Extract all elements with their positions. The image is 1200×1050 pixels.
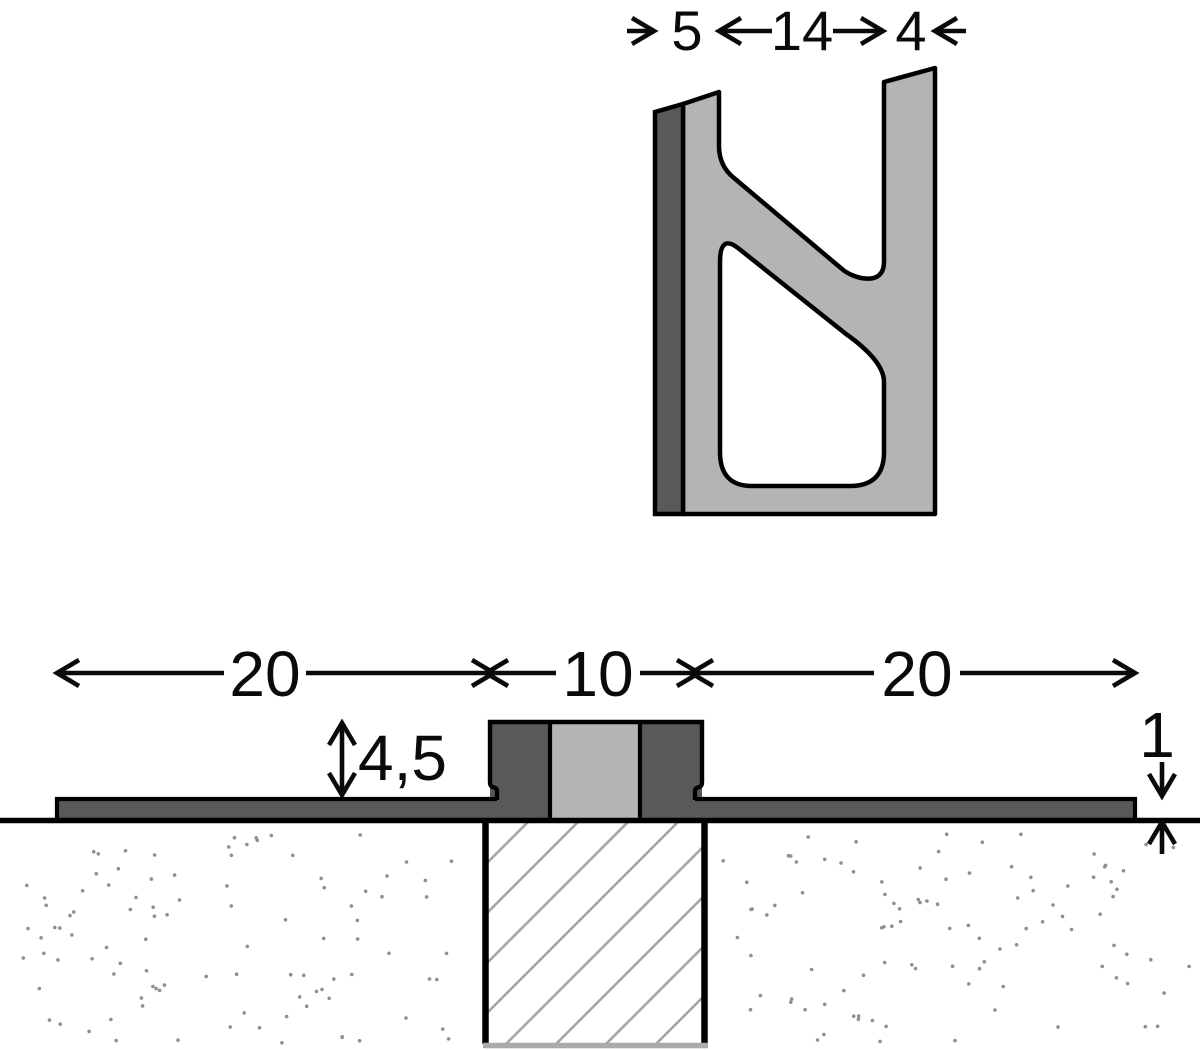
substrate-dot [176, 1038, 180, 1042]
substrate-dot [424, 879, 428, 883]
substrate-dot [1098, 912, 1102, 916]
substrate-dot [204, 975, 208, 979]
substrate-dot [109, 1018, 113, 1022]
substrate-dot [1126, 982, 1130, 986]
substrate-dot [916, 898, 920, 902]
dim-label-4-5: 4,5 [358, 722, 447, 794]
substrate-dot [298, 995, 302, 999]
dim-label-5: 5 [671, 0, 702, 62]
substrate-dot [154, 987, 158, 991]
substrate-dot [857, 1014, 861, 1018]
substrate-dot [945, 832, 949, 836]
substrate-dot [773, 904, 777, 908]
substrate-dot [230, 904, 234, 908]
substrate-dot [918, 866, 922, 870]
substrate-dot [968, 871, 972, 875]
substrate-dot [153, 914, 157, 918]
dim-label-20-right: 20 [881, 638, 952, 710]
substrate-dot [141, 1004, 145, 1008]
substrate-dot [163, 983, 167, 987]
substrate-dot [450, 859, 454, 863]
substrate-dot [150, 877, 154, 881]
substrate-dot [332, 977, 336, 981]
substrate-dot [749, 954, 753, 958]
substrate-dot [114, 1039, 118, 1043]
substrate-dot [1056, 1025, 1060, 1029]
thickness-dimension: 1 [1139, 699, 1175, 854]
substrate-dot [405, 860, 409, 864]
substrate-dot [233, 836, 237, 840]
substrate-dot [322, 937, 326, 941]
substrate-dot [910, 963, 914, 967]
substrate-dot [823, 858, 827, 862]
substrate-dot [319, 877, 323, 881]
substrate-dot [749, 908, 753, 912]
substrate-dot [291, 854, 295, 858]
substrate-dot [1016, 896, 1020, 900]
substrate-dot [302, 974, 306, 978]
substrate-dot [899, 920, 903, 924]
substrate-dot [39, 936, 43, 940]
substrate-dot [225, 884, 229, 888]
substrate-dot [1024, 927, 1028, 931]
substrate-dot [1144, 843, 1148, 847]
substrate-dot [140, 996, 144, 1000]
substrate-dot [305, 1004, 309, 1008]
substrate-dot [358, 833, 362, 837]
substrate-dot [736, 936, 740, 940]
joint-block-insert [550, 722, 640, 820]
substrate-dot [230, 854, 234, 858]
dim-label-10: 10 [562, 638, 633, 710]
substrate-dot [944, 877, 948, 881]
substrate-dot [1070, 928, 1074, 932]
substrate-dot [387, 952, 391, 956]
substrate-dot [151, 905, 155, 909]
substrate-dot [56, 958, 60, 962]
movement-joint-profile-drawing: 5 14 4 20 10 20 4,5 1 [0, 0, 1200, 1050]
substrate-dot [435, 978, 439, 982]
substrate-dot [151, 985, 155, 989]
substrate-dot [26, 927, 30, 931]
substrate-dot [871, 1019, 875, 1023]
substrate-dot [839, 861, 843, 865]
substrate-dot [883, 961, 887, 965]
substrate-dot [1029, 876, 1033, 880]
substrate-dot [289, 973, 293, 977]
joint-cavity-hatch [483, 820, 707, 1046]
substrate-dot [380, 895, 384, 899]
substrate-dot [862, 973, 866, 977]
substrate-dot [857, 1017, 861, 1021]
substrate-dot [883, 893, 887, 897]
substrate-dot [358, 1039, 362, 1043]
substrate-dot [978, 967, 982, 971]
drawing-canvas: 5 14 4 20 10 20 4,5 1 [0, 0, 1200, 1050]
substrate-dot [1115, 888, 1119, 892]
dim-label-1: 1 [1139, 699, 1175, 771]
substrate-dot [1162, 991, 1166, 995]
substrate-dot [322, 886, 326, 890]
substrate-dot [1015, 943, 1019, 947]
dim-label-4: 4 [895, 0, 926, 62]
substrate-dot [153, 853, 157, 857]
substrate-dot [107, 883, 111, 887]
substrate-dot [385, 874, 389, 878]
substrate-dot [1111, 895, 1115, 899]
substrate-dot [356, 937, 360, 941]
substrate-dot [1149, 958, 1153, 962]
substrate-dot [22, 956, 26, 960]
substrate-dot [967, 924, 971, 928]
substrate-dot [759, 994, 763, 998]
substrate-dot [44, 904, 48, 908]
substrate-dot [1092, 875, 1096, 879]
substrate-dot [90, 957, 94, 961]
substrate-dot [327, 997, 331, 1001]
substrate-dot [320, 988, 324, 992]
substrate-dot [918, 901, 922, 905]
substrate-dot [124, 849, 128, 853]
substrate-dot [880, 880, 884, 884]
substrate-dot [242, 1011, 246, 1015]
substrate-dot [43, 896, 47, 900]
substrate-dot [765, 913, 769, 917]
substrate-dot [270, 834, 274, 838]
substrate-dot [967, 982, 971, 986]
substrate-dot [350, 904, 354, 908]
substrate-dot [983, 960, 987, 964]
substrate-dot [38, 987, 42, 991]
substrate-dot [58, 926, 62, 930]
substrate-dot [981, 840, 985, 844]
substrate-dot [951, 964, 955, 968]
substrate-dot [105, 946, 109, 950]
substrate-dot [1066, 884, 1070, 888]
substrate-dot [1187, 965, 1191, 969]
substrate-dot [823, 1003, 827, 1007]
substrate-dot [998, 947, 1002, 951]
substrate-dot [284, 918, 288, 922]
substrate-dot [914, 967, 918, 971]
substrate-dot [81, 889, 85, 893]
substrate-dot [1115, 976, 1119, 980]
substrate-dot [789, 1000, 793, 1004]
substrate-dot [315, 990, 319, 994]
substrate-dot [144, 937, 148, 941]
substrate-dot [1092, 852, 1096, 856]
substrate-dot [425, 895, 429, 899]
substrate-dot [350, 973, 354, 977]
profile-section-view [655, 68, 935, 514]
substrate-dot [1122, 869, 1126, 873]
substrate-dot [280, 1041, 284, 1045]
substrate-dot [258, 1026, 262, 1030]
substrate-dot [816, 1038, 820, 1042]
substrate-dot [810, 968, 814, 972]
profile-dimension-line: 5 14 4 [627, 0, 966, 62]
substrate-dot [70, 933, 74, 937]
substrate-dot [1144, 1025, 1148, 1029]
substrate-dot [953, 1039, 957, 1043]
substrate-dot [285, 1015, 289, 1019]
substrate-dot [129, 908, 133, 912]
substrate-dot [822, 1033, 826, 1037]
substrate-dot [95, 872, 99, 876]
substrate-dot [937, 850, 941, 854]
substrate-dot [42, 952, 46, 956]
substrate-dot [878, 1040, 882, 1044]
substrate-dot [1061, 915, 1065, 919]
substrate-dot [936, 902, 940, 906]
substrate-dot [246, 945, 250, 949]
substrate-dot [72, 910, 76, 914]
substrate-dot [145, 969, 149, 973]
substrate-dot [806, 835, 810, 839]
substrate-dot [948, 927, 952, 931]
substrate-dot [1051, 903, 1055, 907]
substrate-dot [112, 972, 116, 976]
substrate-dot [235, 972, 239, 976]
height-dimension: 4,5 [329, 722, 447, 795]
substrate-dot [117, 867, 121, 871]
substrate-dot [165, 913, 169, 917]
substrate-dot [92, 850, 96, 854]
substrate-dot [1125, 953, 1129, 957]
substrate-dot [803, 1008, 807, 1012]
substrate-dot [884, 1025, 888, 1029]
substrate-dot [978, 937, 982, 941]
substrate-dot [245, 843, 249, 847]
substrate-dot [1001, 985, 1005, 989]
substrate-dot [134, 896, 138, 900]
substrate-dot [1172, 846, 1176, 850]
substrate-dot [1010, 865, 1014, 869]
substrate-dot [1112, 944, 1116, 948]
installed-section-view [0, 722, 1200, 1046]
substrate-dot [447, 1037, 451, 1041]
substrate-dot [745, 881, 749, 885]
substrate-dot [892, 902, 896, 906]
substrate-dot [428, 977, 432, 981]
substrate-dot [97, 852, 101, 856]
substrate-dot [25, 884, 29, 888]
substrate-dot [795, 860, 799, 864]
substrate-dot [898, 907, 902, 911]
substrate-dot [441, 1027, 445, 1031]
substrate-dot [1031, 889, 1035, 893]
substrate-dot [1041, 920, 1045, 924]
dim-label-14: 14 [771, 0, 833, 62]
substrate-dot [854, 840, 858, 844]
substrate-dot [340, 1035, 344, 1039]
substrate-dot [48, 1018, 52, 1022]
installed-dimension-line: 20 10 20 [57, 638, 1135, 710]
substrate-dot [801, 891, 805, 895]
substrate-dot [228, 1025, 232, 1029]
substrate-dot [789, 854, 793, 858]
substrate-dot [925, 899, 929, 903]
dim-label-20-left: 20 [229, 638, 300, 710]
substrate-dot [1019, 833, 1023, 837]
substrate-dot [227, 845, 231, 849]
substrate-dot [749, 1008, 753, 1012]
substrate-dot [1100, 965, 1104, 969]
substrate-dot [178, 898, 182, 902]
substrate-dot [119, 962, 123, 966]
substrate-dot [404, 1016, 408, 1020]
substrate-dot [158, 989, 162, 993]
substrate-dot [58, 1022, 62, 1026]
substrate-dot [364, 890, 368, 894]
substrate-dot [445, 952, 449, 956]
profile-installed [57, 722, 1135, 820]
substrate-dot [880, 926, 884, 930]
substrate-dot [790, 997, 794, 1001]
substrate-dot [890, 924, 894, 928]
substrate-dot [87, 1030, 91, 1034]
substrate-dot [1109, 880, 1113, 884]
joint-cavity [483, 820, 708, 1046]
substrate-dot [53, 926, 57, 930]
substrate-dot [721, 859, 725, 863]
substrate-dot [993, 1008, 997, 1012]
substrate-dot [255, 839, 259, 843]
substrate-dot [1156, 1025, 1160, 1029]
substrate-dot [852, 870, 856, 874]
substrate-dot [852, 1014, 856, 1018]
substrate-dot [356, 919, 360, 923]
substrate-dot [842, 989, 846, 993]
substrate-dot [68, 914, 72, 918]
substrate-dot [1103, 865, 1107, 869]
profile-mounting-strip [655, 104, 683, 514]
substrate-dot [173, 873, 177, 877]
